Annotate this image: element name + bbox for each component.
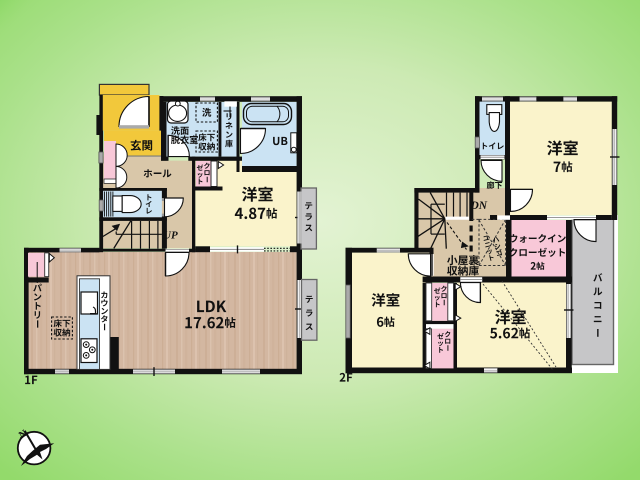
svg-text:DN: DN	[470, 200, 488, 212]
svg-text:UP: UP	[163, 230, 178, 242]
